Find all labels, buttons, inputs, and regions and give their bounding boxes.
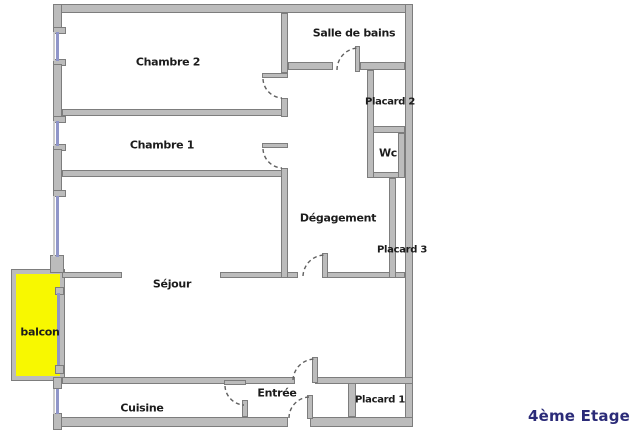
door-arc-cuisine bbox=[225, 386, 244, 405]
room-label-sejour: Séjour bbox=[153, 278, 191, 291]
room-label-placard2: Placard 2 bbox=[365, 97, 415, 108]
room-label-chambre2: Chambre 2 bbox=[136, 56, 200, 69]
room-label-wc: Wc bbox=[379, 147, 397, 160]
door-arc-sejour-entree bbox=[293, 359, 314, 380]
door-arc-chambre1 bbox=[263, 149, 282, 168]
room-label-placard3: Placard 3 bbox=[377, 245, 427, 256]
room-label-salle-de-bains: Salle de bains bbox=[313, 27, 396, 40]
door-arc-chambre2 bbox=[263, 79, 282, 98]
floor-plan: Chambre 2 Chambre 1 Salle de bains Placa… bbox=[0, 0, 640, 443]
room-label-entree: Entrée bbox=[257, 387, 296, 400]
room-label-degagement: Dégagement bbox=[300, 212, 376, 225]
door-arc-degagement bbox=[303, 255, 324, 276]
door-arc-salle-de-bains bbox=[337, 48, 357, 70]
room-label-cuisine: Cuisine bbox=[120, 402, 163, 415]
door-arc-front-door bbox=[289, 397, 309, 418]
floor-title: 4ème Etage bbox=[528, 407, 630, 425]
room-label-balcon: balcon bbox=[20, 326, 59, 339]
room-label-chambre1: Chambre 1 bbox=[130, 139, 194, 152]
room-label-placard1: Placard 1 bbox=[355, 395, 405, 406]
